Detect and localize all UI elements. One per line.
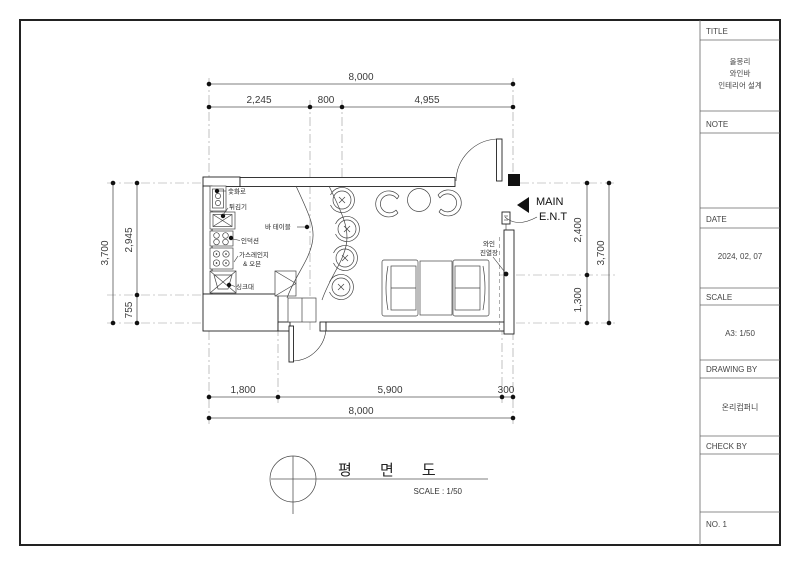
label-gas-range-line2: & 오븐 bbox=[243, 260, 261, 268]
dim-bottom-seg3: 300 bbox=[498, 385, 515, 396]
dim-bottom-seg2: 5,900 bbox=[377, 385, 402, 396]
extension-lines bbox=[107, 78, 615, 424]
door-jamb-bottom bbox=[320, 322, 326, 331]
main-entrance-door-leaf bbox=[497, 139, 503, 181]
dim-top-seg1: 2,245 bbox=[246, 95, 271, 106]
window-wall-top bbox=[240, 178, 455, 187]
label-main-ent-line2: E.N.T bbox=[539, 211, 567, 223]
column-top-right bbox=[508, 174, 520, 186]
caption-title: 평 면 도 bbox=[338, 462, 448, 479]
dim-bottom-total: 8,000 bbox=[348, 406, 373, 417]
drawing-by-value: 온리컴퍼니 bbox=[722, 402, 759, 412]
lounge-area bbox=[376, 189, 489, 317]
wall-block-bottom-left bbox=[203, 294, 278, 331]
label-bar-table: 바 테이블 bbox=[265, 222, 291, 231]
sheet-number: NO. 1 bbox=[706, 520, 727, 529]
date-value: 2024, 02, 07 bbox=[718, 252, 763, 261]
project-title-line2: 와인바 bbox=[730, 68, 751, 78]
drawing-caption: 평 면 도 SCALE : 1/50 bbox=[270, 456, 488, 514]
label-induction: 인덕션 bbox=[241, 236, 259, 245]
drawing-by-label: DRAWING BY bbox=[706, 365, 758, 374]
back-door-swing bbox=[293, 327, 326, 361]
label-fryer: 튀김기 bbox=[229, 202, 247, 211]
label-wine-line1: 와인 bbox=[483, 239, 495, 248]
dim-left-seg1: 2,945 bbox=[124, 227, 135, 252]
dim-left-total: 3,700 bbox=[100, 240, 111, 265]
dim-top-seg3: 4,955 bbox=[414, 95, 439, 106]
sofa-right bbox=[453, 260, 489, 316]
title-label: TITLE bbox=[706, 27, 728, 36]
dim-right-total: 3,700 bbox=[596, 240, 607, 265]
counter-return bbox=[275, 271, 296, 296]
bar-stool bbox=[330, 274, 354, 299]
wall-corner-top-left bbox=[203, 177, 240, 187]
sofa-table bbox=[420, 261, 452, 315]
bar-area bbox=[287, 186, 359, 300]
label-wine-line2: 진열장 bbox=[480, 248, 498, 257]
label-sink: 싱크대 bbox=[236, 282, 254, 291]
project-title-line1: 올몽리 bbox=[730, 57, 751, 66]
dimensions: 8,000 2,245 800 4,955 3,700 2,945 755 2,… bbox=[100, 72, 611, 420]
check-by-label: CHECK BY bbox=[706, 442, 748, 451]
dim-top-total: 8,000 bbox=[348, 72, 373, 83]
back-door-leaf bbox=[289, 326, 294, 362]
window-wall-bottom bbox=[326, 322, 510, 331]
gas-range-oven bbox=[210, 248, 233, 269]
main-entrance-door-swing bbox=[456, 139, 497, 181]
date-label: DATE bbox=[706, 215, 727, 224]
scale-value: A3: 1/50 bbox=[725, 329, 755, 338]
dim-bottom-seg1: 1,800 bbox=[230, 385, 255, 396]
caption-scale: SCALE : 1/50 bbox=[414, 487, 463, 496]
dim-right-seg2: 1,300 bbox=[573, 287, 584, 312]
tub-chair-right bbox=[438, 190, 461, 216]
project-title-line3: 인테리어 설계 bbox=[718, 80, 762, 90]
sink bbox=[210, 271, 236, 293]
round-table bbox=[408, 189, 431, 212]
bar-counter-outer-edge bbox=[322, 186, 347, 300]
dim-right-seg1: 2,400 bbox=[573, 217, 584, 242]
scale-label: SCALE bbox=[706, 293, 732, 302]
bar-stool bbox=[331, 188, 355, 213]
bar-stool bbox=[336, 216, 360, 241]
bar-stool bbox=[334, 245, 358, 270]
drawing-sheet: TITLE 올몽리 와인바 인테리어 설계 NOTE DATE 2024, 02… bbox=[0, 0, 800, 565]
label-gas-range-line1: 가스레인지 bbox=[239, 250, 269, 259]
wall-stub-bottom bbox=[278, 322, 290, 331]
sofa-left bbox=[382, 260, 418, 316]
wine-cabinet-wall bbox=[504, 230, 514, 334]
floor-plan-drawing: TITLE 올몽리 와인바 인테리어 설계 NOTE DATE 2024, 02… bbox=[0, 0, 800, 565]
bar-end-cabinet bbox=[288, 298, 316, 322]
dim-left-seg2: 755 bbox=[124, 301, 135, 318]
label-main-ent-line1: MAIN bbox=[536, 196, 564, 208]
note-label: NOTE bbox=[706, 120, 728, 129]
title-block: TITLE 올몽리 와인바 인테리어 설계 NOTE DATE 2024, 02… bbox=[700, 20, 780, 545]
tub-chair-left bbox=[376, 191, 399, 217]
dim-top-seg2: 800 bbox=[318, 95, 335, 106]
label-charcoal-grill: 숯화로 bbox=[228, 188, 246, 196]
entrance-arrow-icon bbox=[517, 197, 529, 213]
